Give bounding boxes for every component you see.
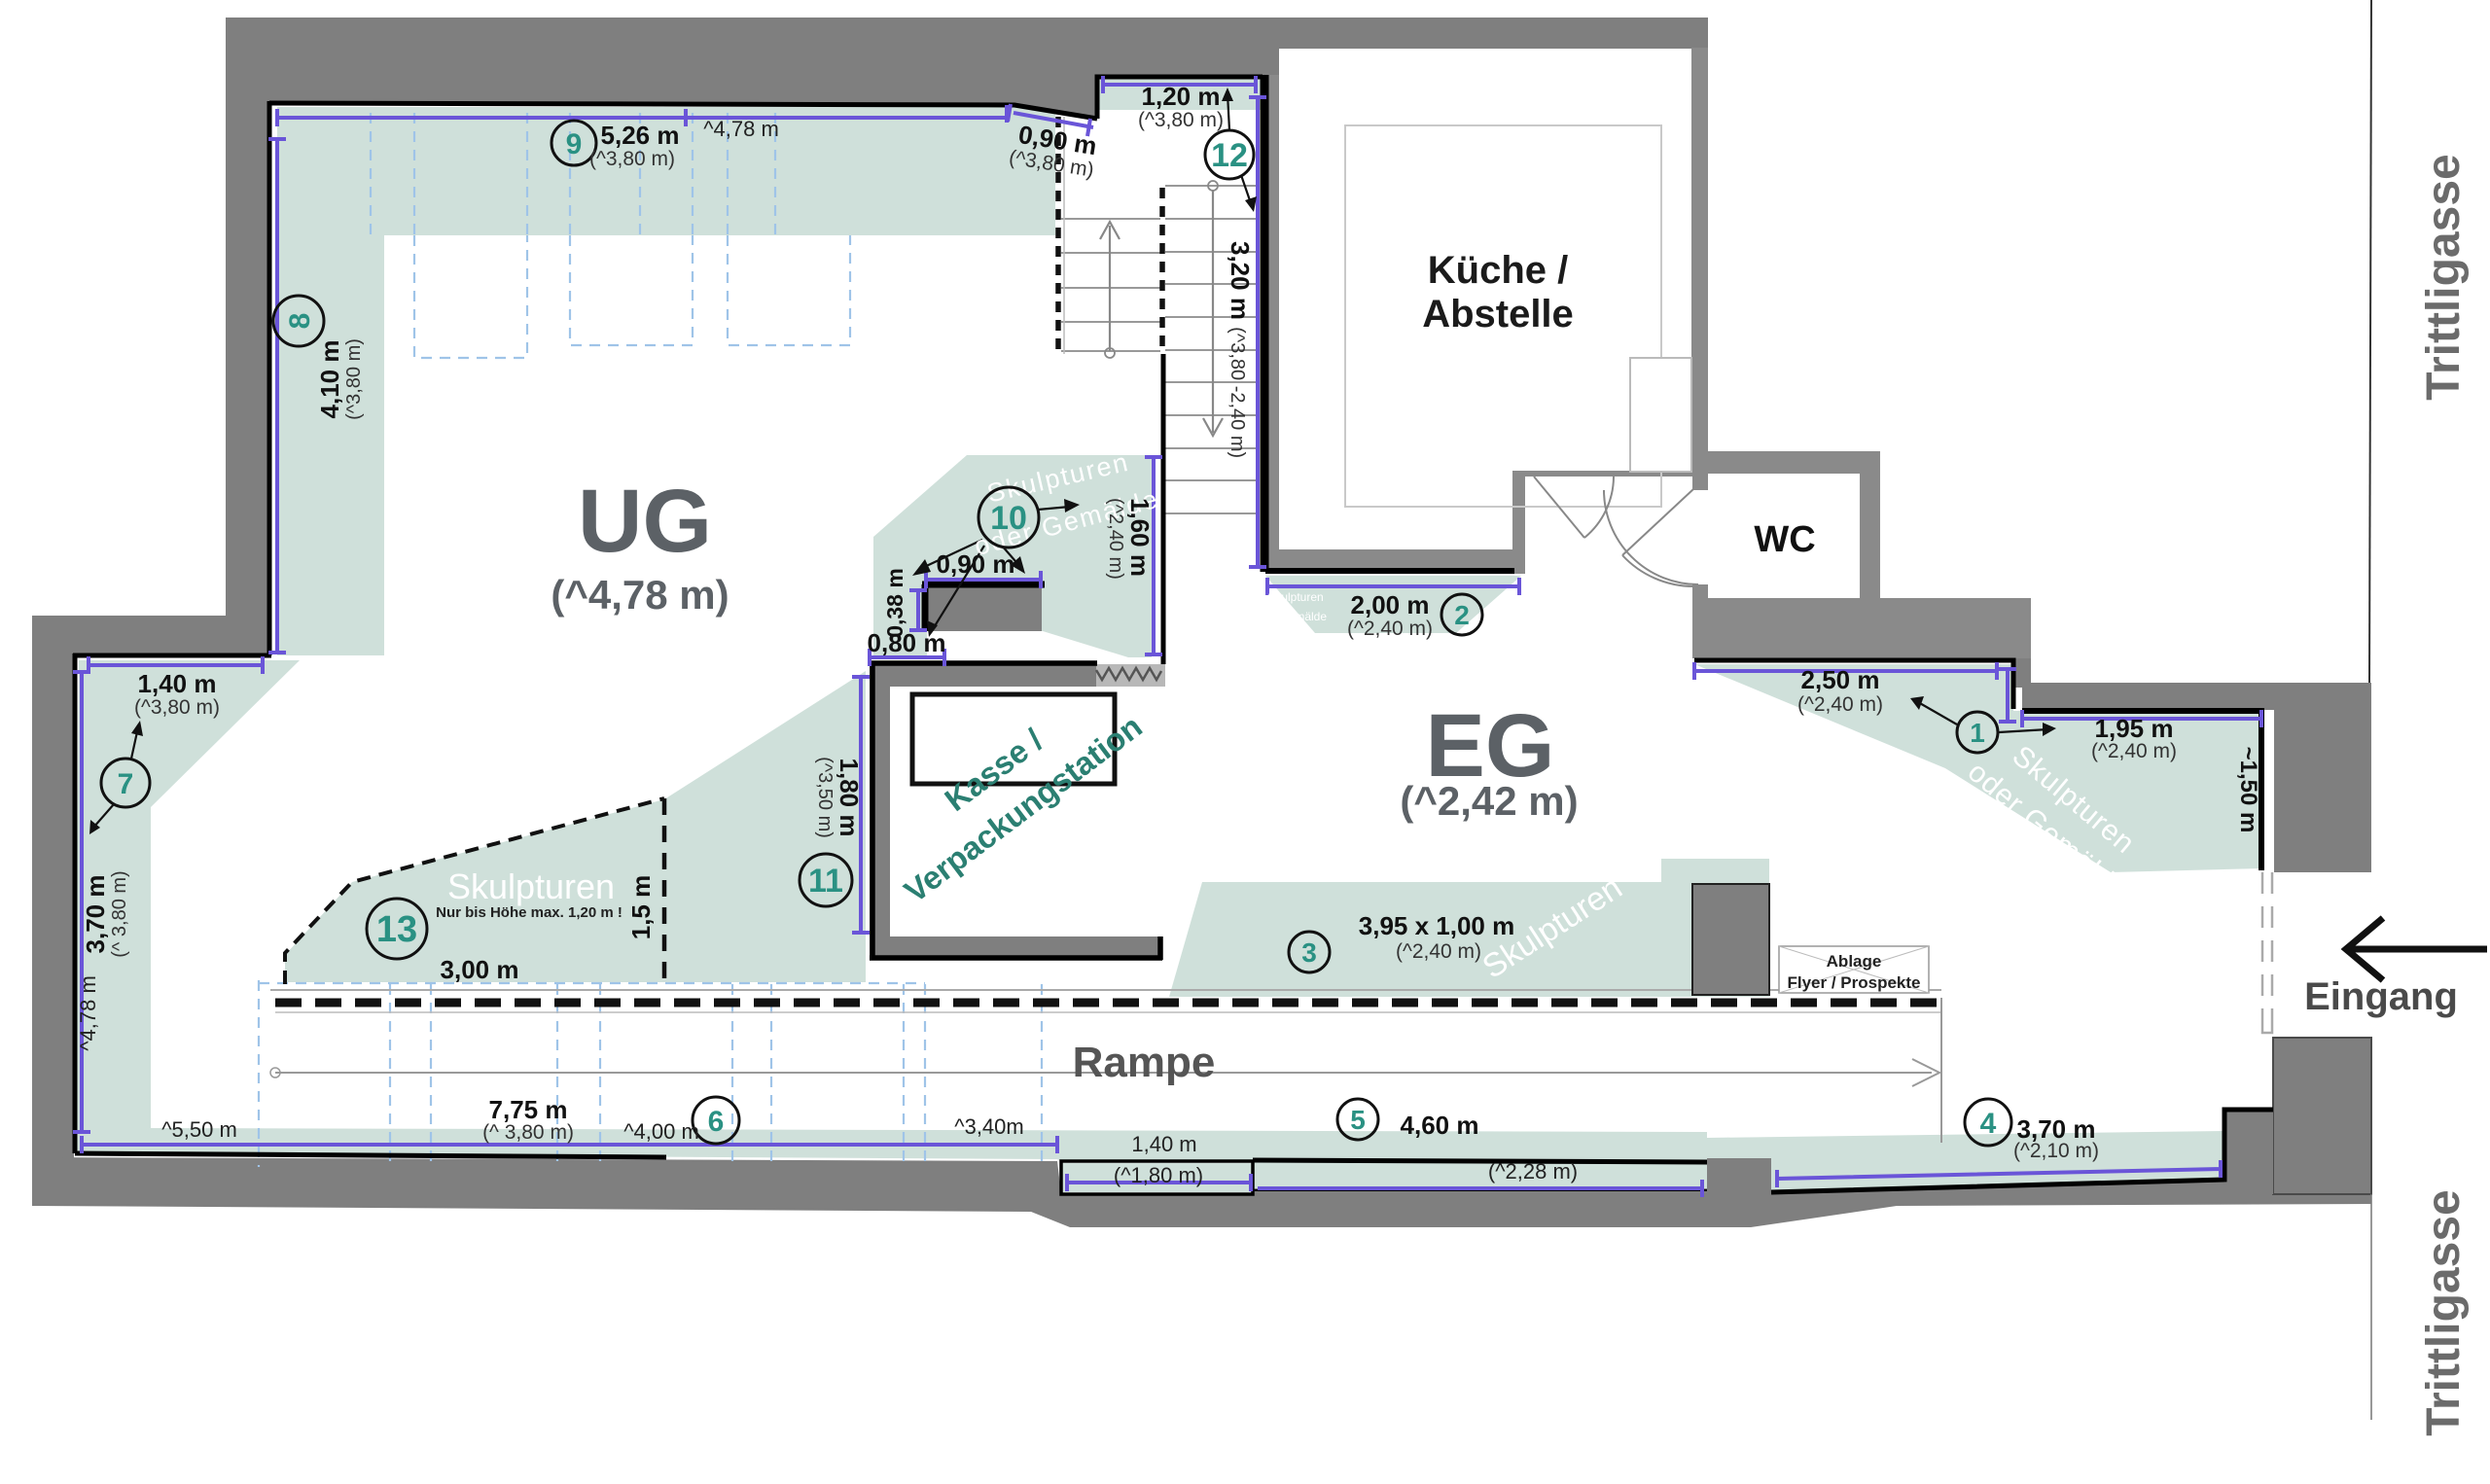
svg-text:4,10 m(^3,80 m): 4,10 m(^3,80 m) — [315, 338, 365, 420]
svg-text:11: 11 — [808, 863, 843, 900]
svg-text:Nur bis Höhe max. 1,20 m !: Nur bis Höhe max. 1,20 m ! — [436, 904, 622, 921]
svg-text:13: 13 — [376, 909, 417, 950]
svg-text:Flyer / Prospekte: Flyer / Prospekte — [1787, 973, 1920, 992]
svg-text:^5,50 m: ^5,50 m — [161, 1117, 237, 1142]
svg-text:1: 1 — [1970, 718, 1985, 748]
svg-text:Trittligasse: Trittligasse — [2418, 154, 2470, 400]
svg-text:(^2,42 m): (^2,42 m) — [1400, 778, 1578, 824]
svg-text:3,00 m: 3,00 m — [441, 955, 519, 984]
svg-text:10: 10 — [990, 500, 1027, 537]
svg-text:2,50 m: 2,50 m — [1801, 665, 1880, 694]
svg-text:6: 6 — [708, 1106, 725, 1138]
svg-text:1,95 m: 1,95 m — [2095, 714, 2174, 743]
svg-text:1,60 m(^2,40 m): 1,60 m(^2,40 m) — [1105, 498, 1155, 580]
svg-text:4: 4 — [1980, 1108, 1997, 1140]
svg-text:UG: UG — [578, 472, 712, 571]
svg-text:0,90 m: 0,90 m — [937, 549, 1015, 579]
svg-text:(^4,78 m): (^4,78 m) — [551, 572, 729, 618]
svg-text:3,95 x 1,00 m: 3,95 x 1,00 m — [1359, 911, 1514, 940]
svg-text:1,80 m(^3,50 m): 1,80 m(^3,50 m) — [814, 757, 864, 838]
svg-text:7: 7 — [118, 768, 134, 800]
svg-text:Eingang: Eingang — [2304, 975, 2458, 1018]
svg-text:(^2,40 m): (^2,40 m) — [2091, 740, 2177, 762]
svg-text:(^ 3,80 m): (^ 3,80 m) — [482, 1121, 574, 1144]
svg-text:2: 2 — [1454, 600, 1470, 630]
svg-text:oder Gemälde: oder Gemälde — [1253, 610, 1327, 623]
svg-text:3: 3 — [1301, 937, 1317, 968]
svg-text:5: 5 — [1350, 1105, 1366, 1135]
svg-text:(^3,80 m): (^3,80 m) — [589, 148, 675, 170]
svg-text:(^2,40 m): (^2,40 m) — [1396, 940, 1481, 963]
svg-text:(^1,80 m): (^1,80 m) — [1114, 1163, 1203, 1187]
svg-text:9: 9 — [566, 128, 583, 160]
svg-text:4,60 m: 4,60 m — [1401, 1111, 1479, 1140]
svg-text:(^2,28 m): (^2,28 m) — [1488, 1159, 1578, 1184]
svg-text:7,75 m: 7,75 m — [489, 1095, 568, 1124]
svg-text:Ablage: Ablage — [1827, 952, 1882, 971]
svg-text:Skulpturen: Skulpturen — [447, 866, 615, 906]
svg-text:Abstelle: Abstelle — [1422, 293, 1574, 336]
svg-text:^4,00 m: ^4,00 m — [623, 1119, 699, 1144]
svg-text:WC: WC — [1754, 519, 1815, 560]
svg-text:(^3,80 m): (^3,80 m) — [134, 696, 220, 719]
svg-text:2,00 m: 2,00 m — [1351, 590, 1430, 619]
svg-text:Skulpturen: Skulpturen — [1267, 590, 1323, 604]
svg-text:12: 12 — [1211, 137, 1248, 174]
svg-text:1,5 m: 1,5 m — [626, 875, 656, 940]
svg-text:^4,78 m: ^4,78 m — [703, 117, 779, 141]
svg-text:(^2,40 m): (^2,40 m) — [1797, 693, 1883, 716]
svg-text:1,40 m: 1,40 m — [138, 669, 217, 698]
svg-text:Trittligasse: Trittligasse — [2418, 1189, 2470, 1435]
svg-text:5,26 m: 5,26 m — [601, 121, 680, 150]
svg-text:^3,40m: ^3,40m — [954, 1114, 1023, 1139]
svg-text:(^3,80 m): (^3,80 m) — [1138, 109, 1224, 131]
svg-text:1,40 m: 1,40 m — [1131, 1132, 1196, 1156]
svg-text:Rampe: Rampe — [1073, 1039, 1216, 1086]
svg-text:1,20 m: 1,20 m — [1142, 82, 1221, 111]
svg-text:Küche /: Küche / — [1428, 249, 1568, 292]
svg-text:^4,78 m: ^4,78 m — [76, 975, 100, 1051]
svg-text:(^2,40 m): (^2,40 m) — [1347, 618, 1433, 640]
svg-text:8: 8 — [284, 313, 316, 330]
svg-text:0,80 m: 0,80 m — [868, 628, 946, 657]
svg-text:3,70 m(^ 3,80 m): 3,70 m(^ 3,80 m) — [81, 870, 130, 957]
svg-text:(^2,10 m): (^2,10 m) — [2013, 1140, 2099, 1162]
svg-text:~1,50 m: ~1,50 m — [2235, 747, 2261, 833]
